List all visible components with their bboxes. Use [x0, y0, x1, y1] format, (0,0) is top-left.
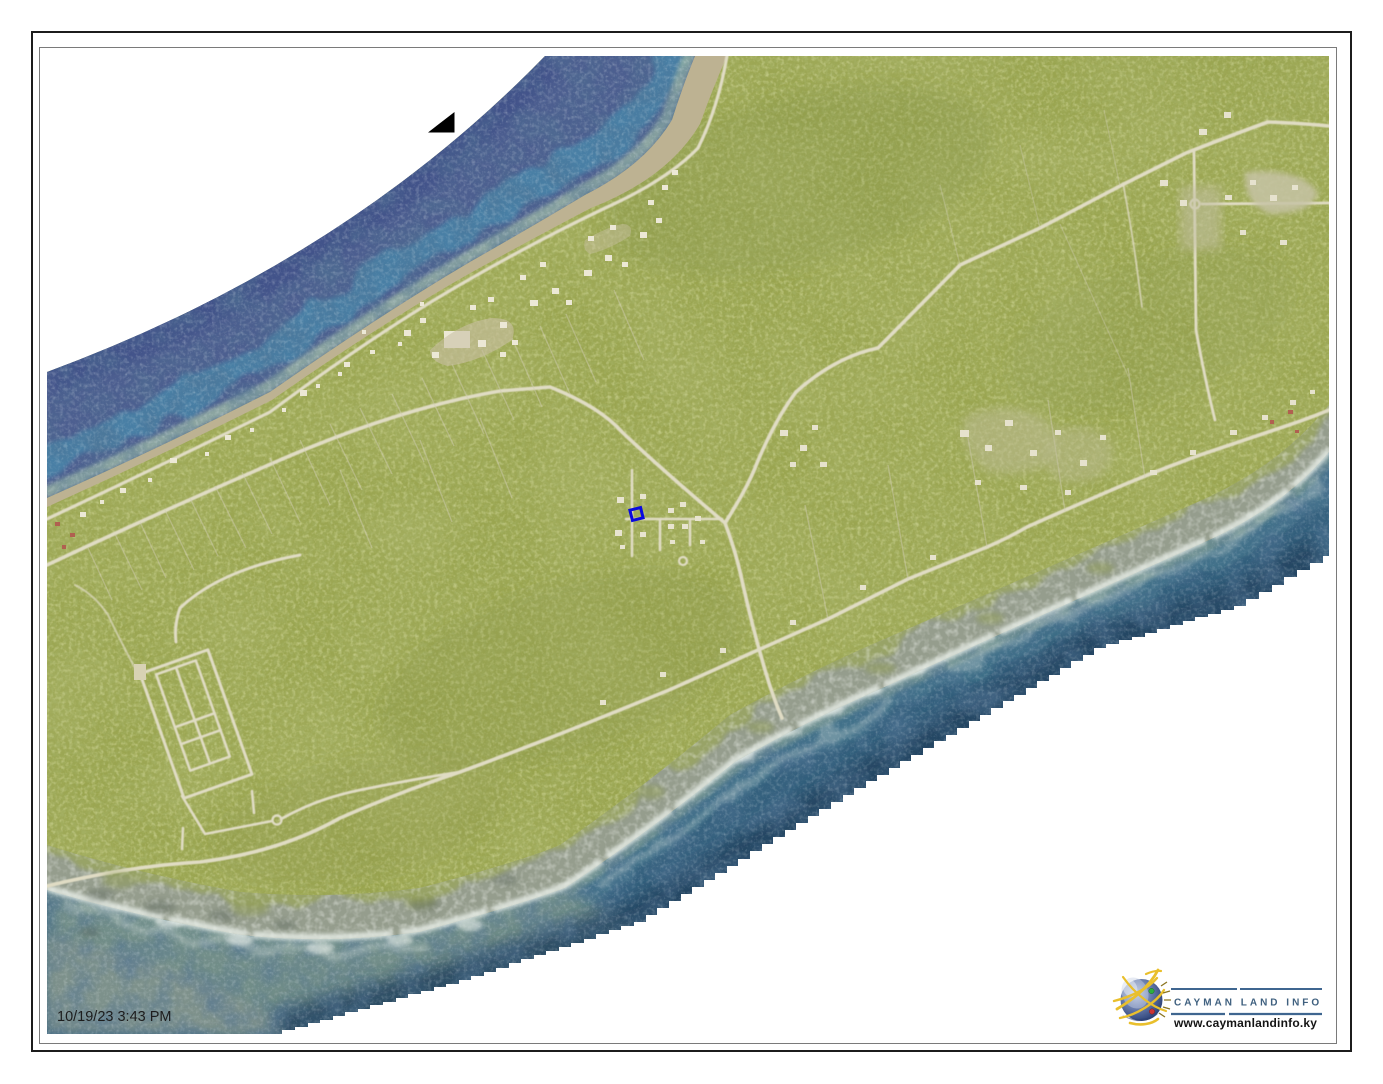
svg-text:CAYMAN LAND INFO: CAYMAN LAND INFO — [1174, 998, 1322, 1009]
svg-text:www.caymanlandinfo.ky: www.caymanlandinfo.ky — [1173, 1016, 1317, 1030]
